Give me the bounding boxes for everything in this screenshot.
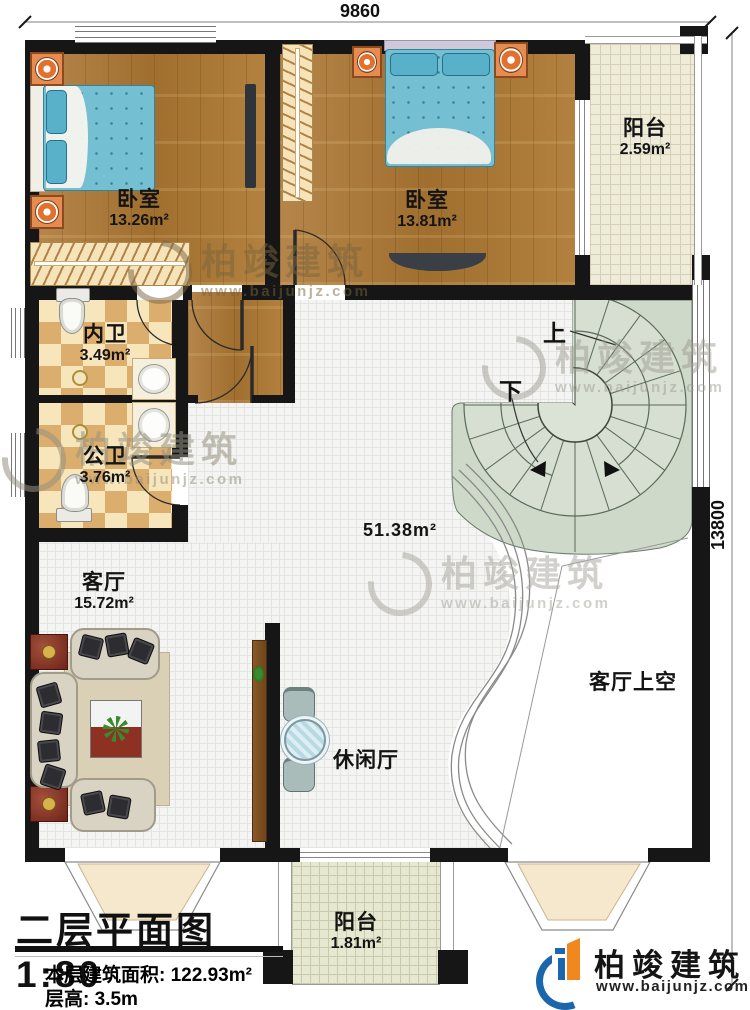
sink-counter [132, 358, 176, 400]
bay-window-right [505, 862, 650, 930]
room-label-void: 客厅上空 [573, 672, 693, 695]
wall-bath-bottom [25, 528, 188, 542]
room-label-bedroom-left: 卧室13.26m² [79, 189, 199, 229]
wall-corridor-stub-b [252, 395, 295, 403]
room-label-public-bath: 公卫3.76m² [45, 446, 165, 486]
floor-drain [72, 370, 88, 386]
lamp-icon [357, 51, 377, 73]
stairs-down-label: 下 [499, 372, 522, 406]
sofa-pillow [39, 711, 64, 736]
sofa-pillow [104, 632, 129, 657]
dimension-height: 13800 [708, 440, 729, 550]
title-underline-thin [15, 956, 283, 957]
plant-icon [103, 716, 129, 742]
bed-pillow [442, 53, 490, 76]
wardrobe-rail [295, 48, 300, 198]
sofa-pillow [106, 794, 131, 819]
lamp-icon [35, 57, 59, 81]
floor-area-line: 本层建筑面积: 122.93m² [45, 960, 252, 987]
wall-mid-3 [242, 285, 295, 300]
wall-leisure-divider [265, 623, 280, 848]
floor-height-value: 3.5m [95, 989, 138, 1010]
brand-website: www.baijunjz.com [596, 978, 749, 995]
wall-bedroom-right-side-a [575, 40, 590, 100]
tv-panel [245, 84, 256, 188]
window-ensuite-left [11, 308, 25, 358]
wall-bottom-2 [220, 848, 300, 862]
wall-bedroom-divider [265, 40, 280, 285]
room-label-leisure: 休闲厅 [306, 750, 426, 773]
room-label-balcony-top: 阳台2.59m² [585, 118, 705, 158]
void-edge-line [499, 538, 688, 852]
balcony-top-rail-east [694, 36, 702, 285]
wall-mid-4 [345, 285, 710, 300]
floor-height-line: 层高: 3.5m [45, 984, 138, 1010]
wall-corridor-stub-a [188, 395, 198, 403]
title-underline-thick [15, 946, 283, 952]
nightstand [494, 42, 528, 78]
window-publicbath-left [11, 433, 25, 497]
floor-plan-page: 柏竣建筑www.baijunjz.com 柏竣建筑www.baijunjz.co… [0, 0, 750, 1010]
wall-bottom-4 [648, 848, 710, 862]
sink-basin [138, 364, 170, 394]
table-knob [42, 797, 56, 811]
sink-basin [138, 408, 170, 442]
nightstand [30, 52, 64, 86]
table-knob [42, 645, 56, 659]
bed-pillow [390, 53, 438, 76]
wall-mid-2 [183, 285, 192, 300]
plant-icon [253, 666, 264, 682]
bed-pillow [46, 140, 67, 184]
floor-area-value: 122.93m² [171, 965, 252, 986]
room-label-hall-area: 51.38m² [340, 521, 460, 540]
window-bedroom-left-top [75, 26, 216, 43]
wall-corridor-right [283, 300, 295, 403]
room-label-bedroom-right: 卧室13.81m² [367, 190, 487, 230]
sliding-door-balcony-bottom [300, 848, 430, 862]
nightstand [352, 46, 382, 78]
wall-bottom-3 [430, 848, 508, 862]
room-label-ensuite: 内卫3.49m² [45, 324, 165, 364]
lamp-icon [499, 47, 523, 73]
room-label-living: 客厅15.72m² [44, 572, 164, 612]
brand-logo-icon [536, 938, 590, 1002]
floor-drain [72, 424, 88, 440]
sofa-pillow [37, 739, 61, 763]
chair [283, 687, 315, 722]
wall-bedroom-right-side-b [575, 255, 590, 300]
stairs-up-label: 上 [543, 314, 566, 348]
wall-bottom-1 [25, 848, 65, 862]
room-label-balcony-bottom: 阳台1.81m² [296, 912, 416, 952]
sink-counter [132, 402, 176, 448]
bed-pillow [46, 90, 67, 134]
lamp-icon [35, 200, 59, 224]
brand-logo: 柏竣建筑 www.baijunjz.com [536, 938, 746, 1004]
column-balcony-right [438, 950, 468, 984]
wardrobe-rail [34, 261, 186, 266]
nightstand [30, 195, 64, 229]
balcony-top-rail-north [585, 36, 707, 44]
sofa-pillow [80, 790, 106, 816]
dimension-width: 9860 [325, 1, 395, 22]
